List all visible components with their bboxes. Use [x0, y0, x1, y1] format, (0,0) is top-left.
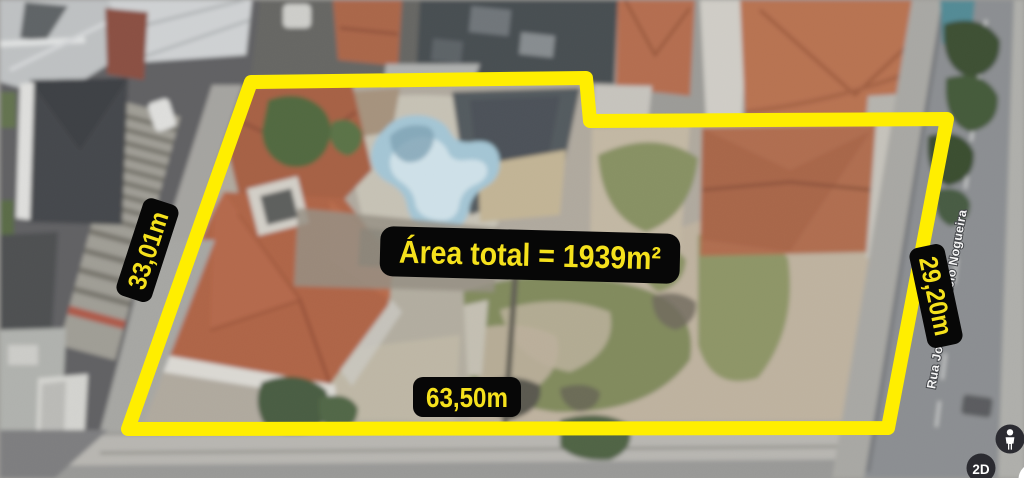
svg-text:63,50m: 63,50m [426, 382, 508, 413]
svg-text:2D: 2D [972, 462, 990, 477]
svg-text:Área total = 1939m²: Área total = 1939m² [399, 234, 662, 277]
